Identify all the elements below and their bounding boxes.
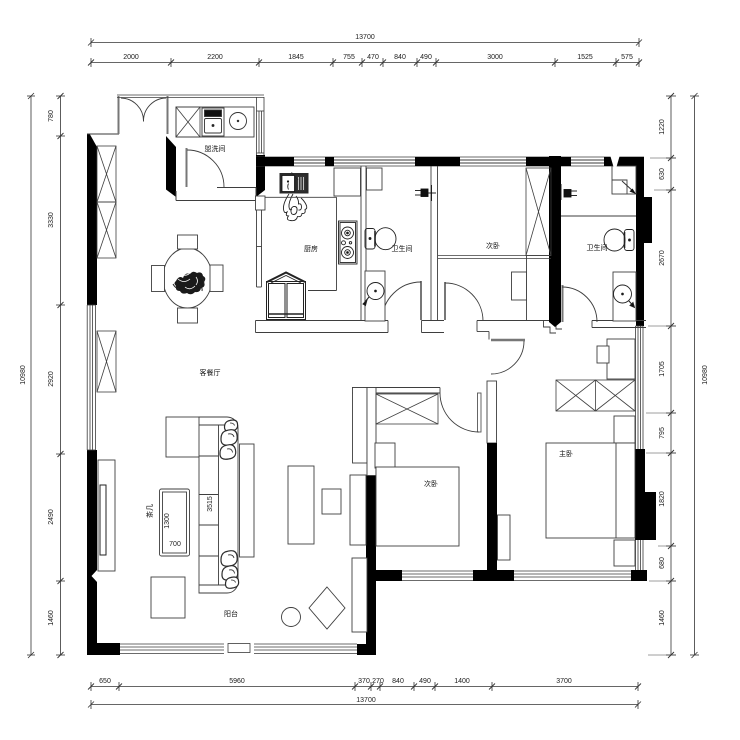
svg-text:1220: 1220 xyxy=(659,119,666,135)
svg-text:1400: 1400 xyxy=(454,678,470,685)
svg-text:2000: 2000 xyxy=(123,54,139,61)
svg-text:2670: 2670 xyxy=(659,250,666,266)
svg-text:次卧: 次卧 xyxy=(424,479,438,488)
svg-text:1820: 1820 xyxy=(659,491,666,507)
svg-text:阳台: 阳台 xyxy=(224,609,238,618)
svg-text:755: 755 xyxy=(343,54,355,61)
svg-text:1460: 1460 xyxy=(659,610,666,626)
svg-text:840: 840 xyxy=(392,678,404,685)
svg-text:370: 370 xyxy=(358,678,370,685)
svg-text:1705: 1705 xyxy=(659,361,666,377)
svg-text:700: 700 xyxy=(169,541,181,548)
svg-text:10980: 10980 xyxy=(20,365,27,385)
svg-text:490: 490 xyxy=(420,54,432,61)
svg-text:卫生间: 卫生间 xyxy=(392,244,413,253)
svg-text:650: 650 xyxy=(99,678,111,685)
svg-text:270: 270 xyxy=(372,678,384,685)
svg-text:840: 840 xyxy=(394,54,406,61)
svg-text:1845: 1845 xyxy=(288,54,304,61)
svg-text:490: 490 xyxy=(419,678,431,685)
svg-text:5960: 5960 xyxy=(229,678,245,685)
svg-text:1460: 1460 xyxy=(48,610,55,626)
svg-text:13700: 13700 xyxy=(356,697,376,704)
svg-text:3700: 3700 xyxy=(556,678,572,685)
svg-text:2920: 2920 xyxy=(48,371,55,387)
svg-text:盥洗间: 盥洗间 xyxy=(205,144,226,153)
svg-text:13700: 13700 xyxy=(355,34,375,41)
svg-text:10980: 10980 xyxy=(702,365,709,385)
svg-text:2200: 2200 xyxy=(207,54,223,61)
svg-text:795: 795 xyxy=(659,427,666,439)
svg-text:630: 630 xyxy=(659,168,666,180)
svg-text:3515: 3515 xyxy=(207,496,214,512)
svg-text:2490: 2490 xyxy=(48,509,55,525)
svg-text:茶几: 茶几 xyxy=(145,504,154,518)
svg-text:575: 575 xyxy=(621,54,633,61)
svg-text:主卧: 主卧 xyxy=(559,449,573,458)
svg-text:客餐厅: 客餐厅 xyxy=(200,368,221,377)
svg-text:厨房: 厨房 xyxy=(304,244,318,253)
svg-text:3330: 3330 xyxy=(48,212,55,228)
svg-text:1300: 1300 xyxy=(164,513,171,529)
svg-text:次卧: 次卧 xyxy=(486,241,500,250)
svg-text:1525: 1525 xyxy=(577,54,593,61)
svg-text:470: 470 xyxy=(367,54,379,61)
svg-text:3000: 3000 xyxy=(487,54,503,61)
svg-text:680: 680 xyxy=(659,557,666,569)
svg-text:780: 780 xyxy=(48,110,55,122)
svg-text:卫生间: 卫生间 xyxy=(587,243,608,252)
